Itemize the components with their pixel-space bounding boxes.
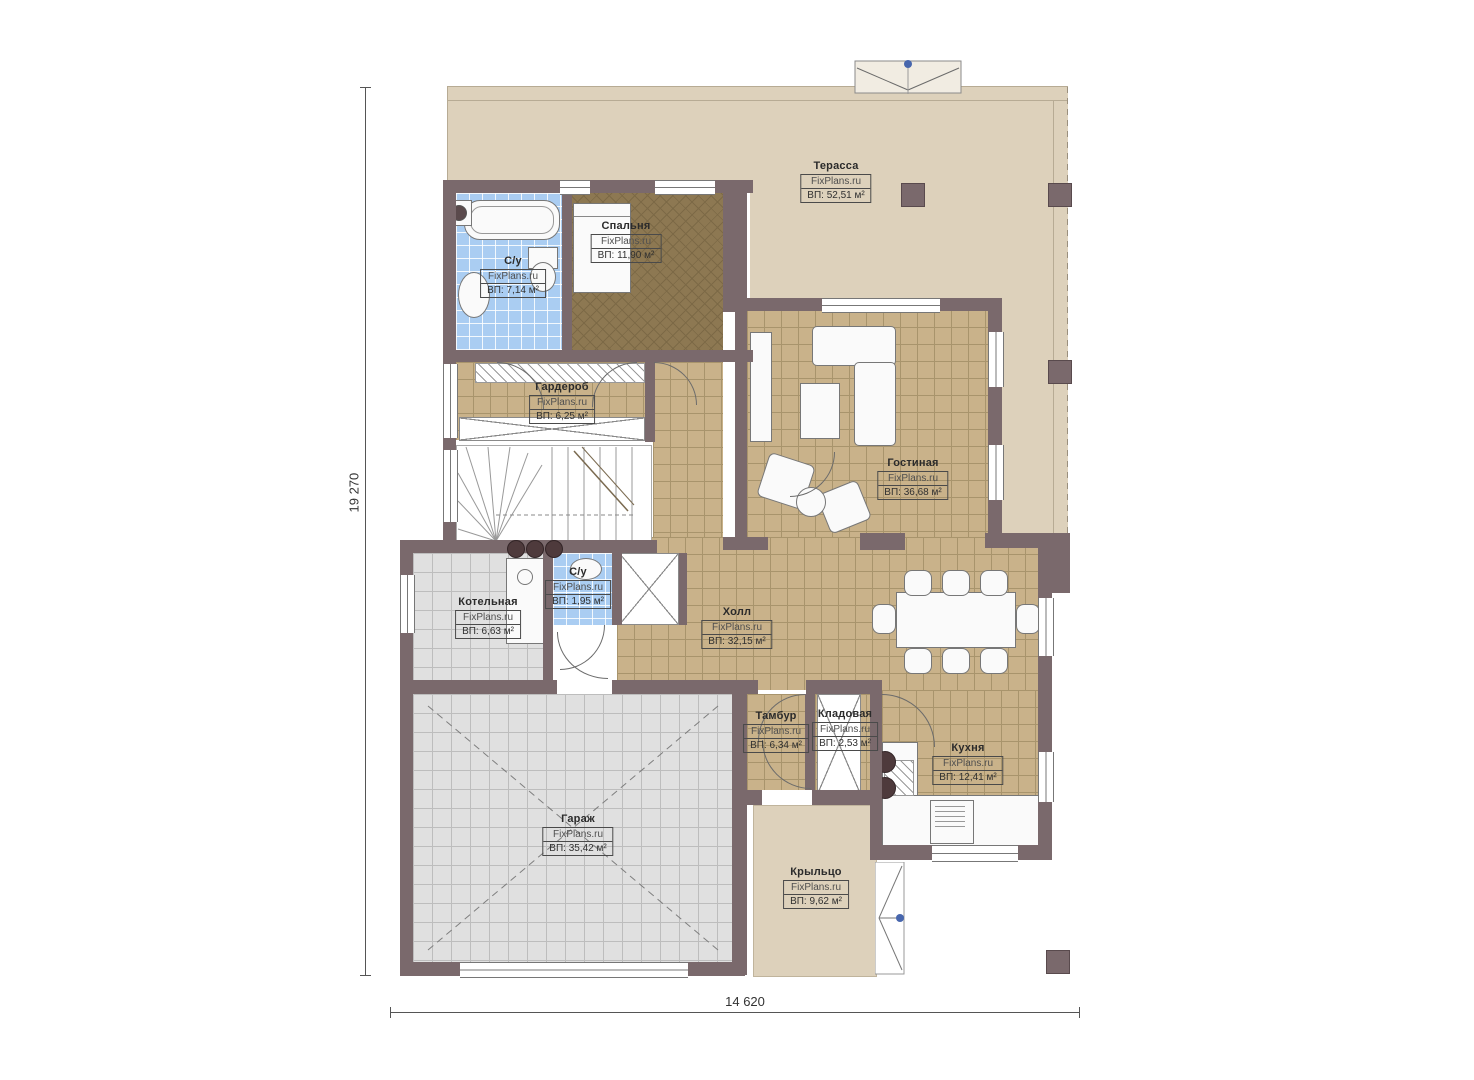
- room-label-small-bathroom: С/у FixPlans.ru ВП: 1,95 м²: [545, 566, 611, 609]
- chimney-marker: [854, 60, 962, 94]
- watermark: FixPlans.ru: [592, 235, 661, 249]
- watermark: FixPlans.ru: [702, 621, 771, 635]
- dimension-tick: [1079, 1007, 1080, 1018]
- room-label-vestibule: Тамбур FixPlans.ru ВП: 6,34 м²: [743, 710, 809, 753]
- dimension-tick: [360, 975, 371, 976]
- wall-segment: [1018, 845, 1052, 860]
- room-name: Котельная: [455, 596, 521, 608]
- dining-chair: [904, 570, 932, 596]
- dimension-tick: [360, 87, 371, 88]
- room-label-storage: Кладовая FixPlans.ru ВП: 2,53 м²: [812, 708, 878, 751]
- dining-chair: [942, 648, 970, 674]
- room-area: ВП: 6,25 м²: [530, 410, 594, 423]
- room-name: Холл: [701, 606, 772, 618]
- heating-unit: [545, 540, 563, 558]
- window: [400, 575, 415, 633]
- wall-segment: [612, 553, 622, 625]
- room-name: Кладовая: [812, 708, 878, 720]
- dining-chair: [980, 570, 1008, 596]
- wall-segment: [562, 193, 572, 350]
- dimension-line-horizontal: [390, 1012, 1080, 1013]
- bathtub-inner: [470, 206, 554, 234]
- room-area: ВП: 1,95 м²: [546, 595, 610, 608]
- room-area: ВП: 11,90 м²: [592, 249, 661, 262]
- wall-segment: [400, 692, 413, 975]
- heating-unit: [507, 540, 525, 558]
- window: [1038, 598, 1054, 656]
- column: [901, 183, 925, 207]
- room-name: Тамбур: [743, 710, 809, 722]
- heating-unit: [526, 540, 544, 558]
- room-area: ВП: 12,41 м²: [933, 771, 1002, 784]
- terrace-floor: [1002, 95, 1068, 545]
- column: [1048, 183, 1072, 207]
- entry-steps: [875, 862, 905, 975]
- roof-edge-line: [447, 87, 448, 181]
- room-name: Спальня: [591, 220, 662, 232]
- window: [932, 845, 1018, 862]
- watermark: FixPlans.ru: [481, 270, 545, 284]
- bathtub: [464, 200, 560, 240]
- window: [655, 180, 715, 195]
- room-name: Кухня: [932, 742, 1003, 754]
- wall-segment: [723, 537, 768, 550]
- column: [1048, 360, 1072, 384]
- dining-table: [896, 592, 1016, 648]
- window: [988, 332, 1004, 387]
- watermark: FixPlans.ru: [878, 472, 947, 486]
- dining-chair: [872, 604, 896, 634]
- window: [822, 298, 940, 313]
- room-area: ВП: 2,53 м²: [813, 737, 877, 750]
- watermark: FixPlans.ru: [813, 723, 877, 737]
- room-name: Гараж: [542, 813, 613, 825]
- room-label-boiler-room: Котельная FixPlans.ru ВП: 6,63 м²: [455, 596, 521, 639]
- room-name: Гардероб: [529, 381, 595, 393]
- roof-inset-line: [447, 100, 1067, 101]
- watermark: FixPlans.ru: [546, 581, 610, 595]
- roof-inset-line: [1053, 100, 1054, 544]
- boiler-sink: [517, 569, 533, 585]
- room-area: ВП: 6,63 м²: [456, 625, 520, 638]
- room-area: ВП: 7,14 м²: [481, 284, 545, 297]
- room-area: ВП: 32,15 м²: [702, 635, 771, 648]
- room-label-living-room: Гостиная FixPlans.ru ВП: 36,68 м²: [877, 457, 948, 500]
- watermark: FixPlans.ru: [530, 396, 594, 410]
- room-name: Крыльцо: [783, 866, 849, 878]
- floor-plan: Терасса FixPlans.ru ВП: 52,51 м² Спальня…: [0, 0, 1474, 1080]
- bed-pillow-line: [574, 216, 630, 217]
- roof-edge-dashed: [1067, 87, 1068, 545]
- sofa: [854, 362, 896, 446]
- dimension-line-vertical: [365, 87, 366, 976]
- dining-chair: [980, 648, 1008, 674]
- room-area: ВП: 36,68 м²: [878, 486, 947, 499]
- room-area: ВП: 6,34 м²: [744, 739, 808, 752]
- wall-segment: [732, 790, 762, 805]
- room-name: С/у: [480, 255, 546, 267]
- dining-chair: [904, 648, 932, 674]
- dining-chair: [942, 570, 970, 596]
- watermark: FixPlans.ru: [933, 757, 1002, 771]
- room-name: Гостиная: [877, 457, 948, 469]
- closet: [619, 553, 679, 625]
- room-name: Терасса: [800, 160, 871, 172]
- window: [443, 364, 458, 438]
- wall-segment: [1038, 545, 1052, 860]
- roof-edge-line: [447, 86, 1068, 87]
- tv-cabinet: [750, 332, 772, 442]
- dimension-height: 19 270: [346, 473, 361, 513]
- watermark: FixPlans.ru: [744, 725, 808, 739]
- watermark: FixPlans.ru: [784, 881, 848, 895]
- wall-segment: [806, 680, 882, 694]
- room-area: ВП: 52,51 м²: [801, 189, 870, 202]
- window: [443, 450, 458, 522]
- room-label-wardrobe: Гардероб FixPlans.ru ВП: 6,25 м²: [529, 381, 595, 424]
- wall-segment: [723, 180, 747, 312]
- wall-segment: [860, 533, 905, 550]
- wall-segment: [679, 553, 687, 625]
- wall-segment: [812, 790, 882, 805]
- room-label-kitchen: Кухня FixPlans.ru ВП: 12,41 м²: [932, 742, 1003, 785]
- room-label-porch: Крыльцо FixPlans.ru ВП: 9,62 м²: [783, 866, 849, 909]
- garage-door: [460, 962, 688, 978]
- room-area: ВП: 9,62 м²: [784, 895, 848, 908]
- room-label-terrace: Терасса FixPlans.ru ВП: 52,51 м²: [800, 160, 871, 203]
- window: [1038, 752, 1054, 802]
- dining-chair: [1016, 604, 1040, 634]
- watermark: FixPlans.ru: [543, 828, 612, 842]
- dimension-width: 14 620: [725, 994, 765, 1009]
- room-label-hall: Холл FixPlans.ru ВП: 32,15 м²: [701, 606, 772, 649]
- room-label-bedroom: Спальня FixPlans.ru ВП: 11,90 м²: [591, 220, 662, 263]
- room-name: С/у: [545, 566, 611, 578]
- sink-lines: [935, 806, 965, 828]
- wall-segment: [443, 350, 753, 362]
- staircase: [456, 445, 650, 543]
- coffee-table: [800, 383, 840, 439]
- watermark: FixPlans.ru: [456, 611, 520, 625]
- wall-segment: [735, 312, 747, 545]
- kitchen-sink: [930, 800, 974, 844]
- room-label-garage: Гараж FixPlans.ru ВП: 35,42 м²: [542, 813, 613, 856]
- wall-segment: [400, 962, 460, 976]
- room-area: ВП: 35,42 м²: [543, 842, 612, 855]
- wall-segment: [400, 680, 557, 694]
- room-label-bathroom: С/у FixPlans.ru ВП: 7,14 м²: [480, 255, 546, 298]
- window: [988, 445, 1004, 500]
- column: [1046, 950, 1070, 974]
- watermark: FixPlans.ru: [801, 175, 870, 189]
- wall-segment: [747, 298, 822, 311]
- sofa: [812, 326, 896, 366]
- window: [560, 180, 590, 195]
- dimension-tick: [390, 1007, 391, 1018]
